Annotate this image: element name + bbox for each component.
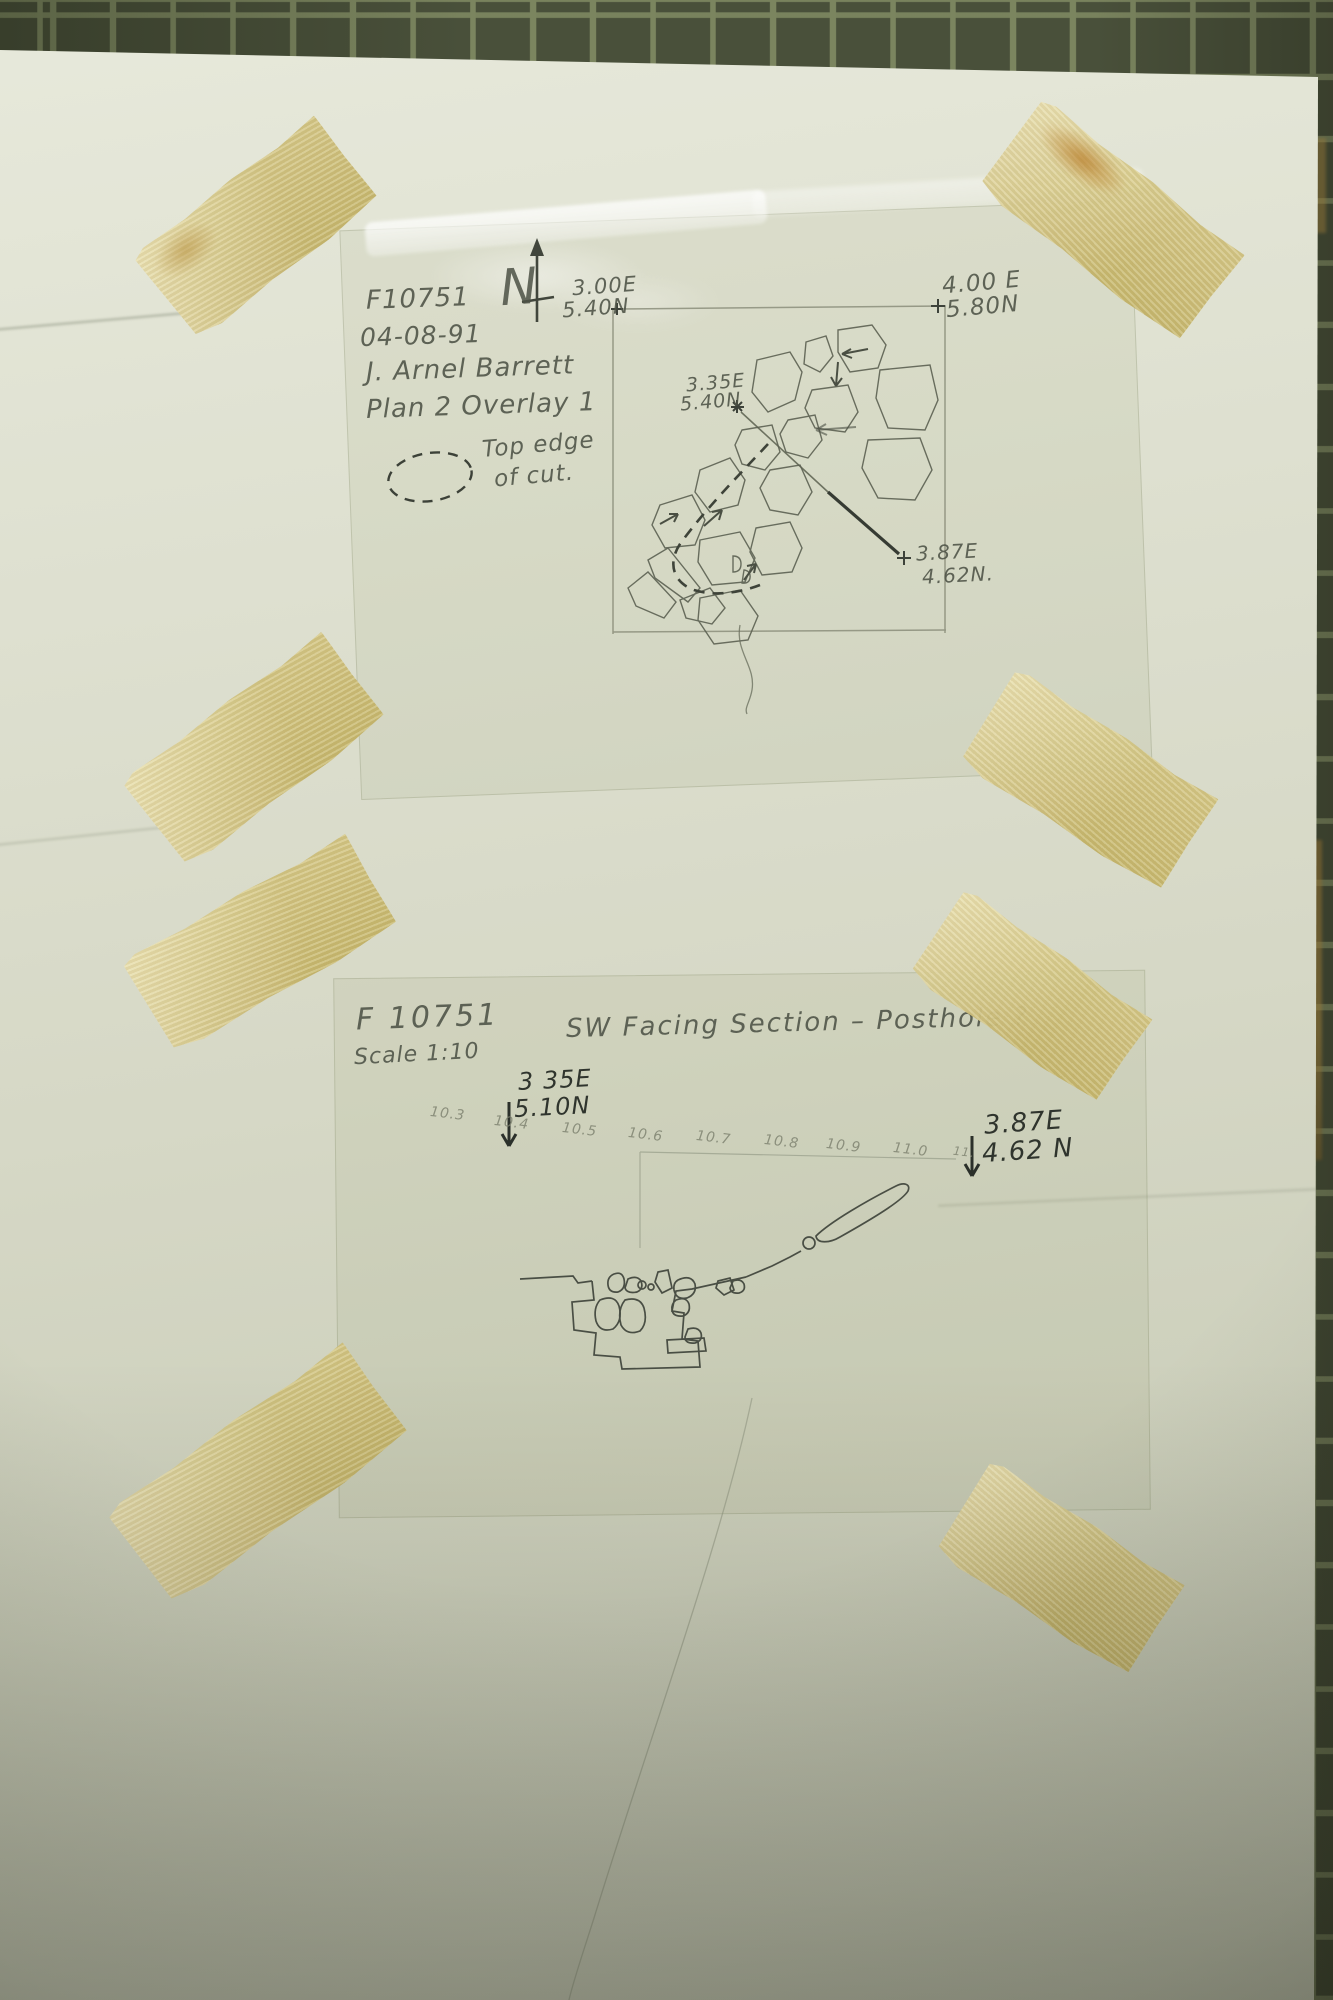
stone-cluster-drawing — [628, 325, 938, 644]
section-guide-lines — [640, 1152, 956, 1248]
survey-point-markers — [611, 299, 945, 565]
plan-feature-id-label: F10751 — [366, 282, 471, 316]
photo-scene: F10751 04-08-91 J. Arnel Barrett Plan 2 … — [0, 0, 1333, 2000]
plan-date-label: 04-08-91 — [360, 319, 482, 352]
section-profile-drawing — [520, 1184, 909, 1369]
section-feature-id-label: F 10751 — [355, 998, 499, 1038]
plan-pt-b-northing-label: 4.62N. — [921, 561, 994, 589]
plan-nw-northing-label: 5.40N — [561, 294, 630, 323]
stray-pencil-curve — [569, 1398, 752, 2000]
north-letter-label: N — [498, 257, 540, 318]
stray-pencil-line — [739, 625, 752, 714]
ruler-tick-label: 11. — [952, 1144, 976, 1161]
cut-legend-ellipse — [385, 447, 475, 508]
section-right-northing-label: 4.62 N — [981, 1133, 1074, 1169]
